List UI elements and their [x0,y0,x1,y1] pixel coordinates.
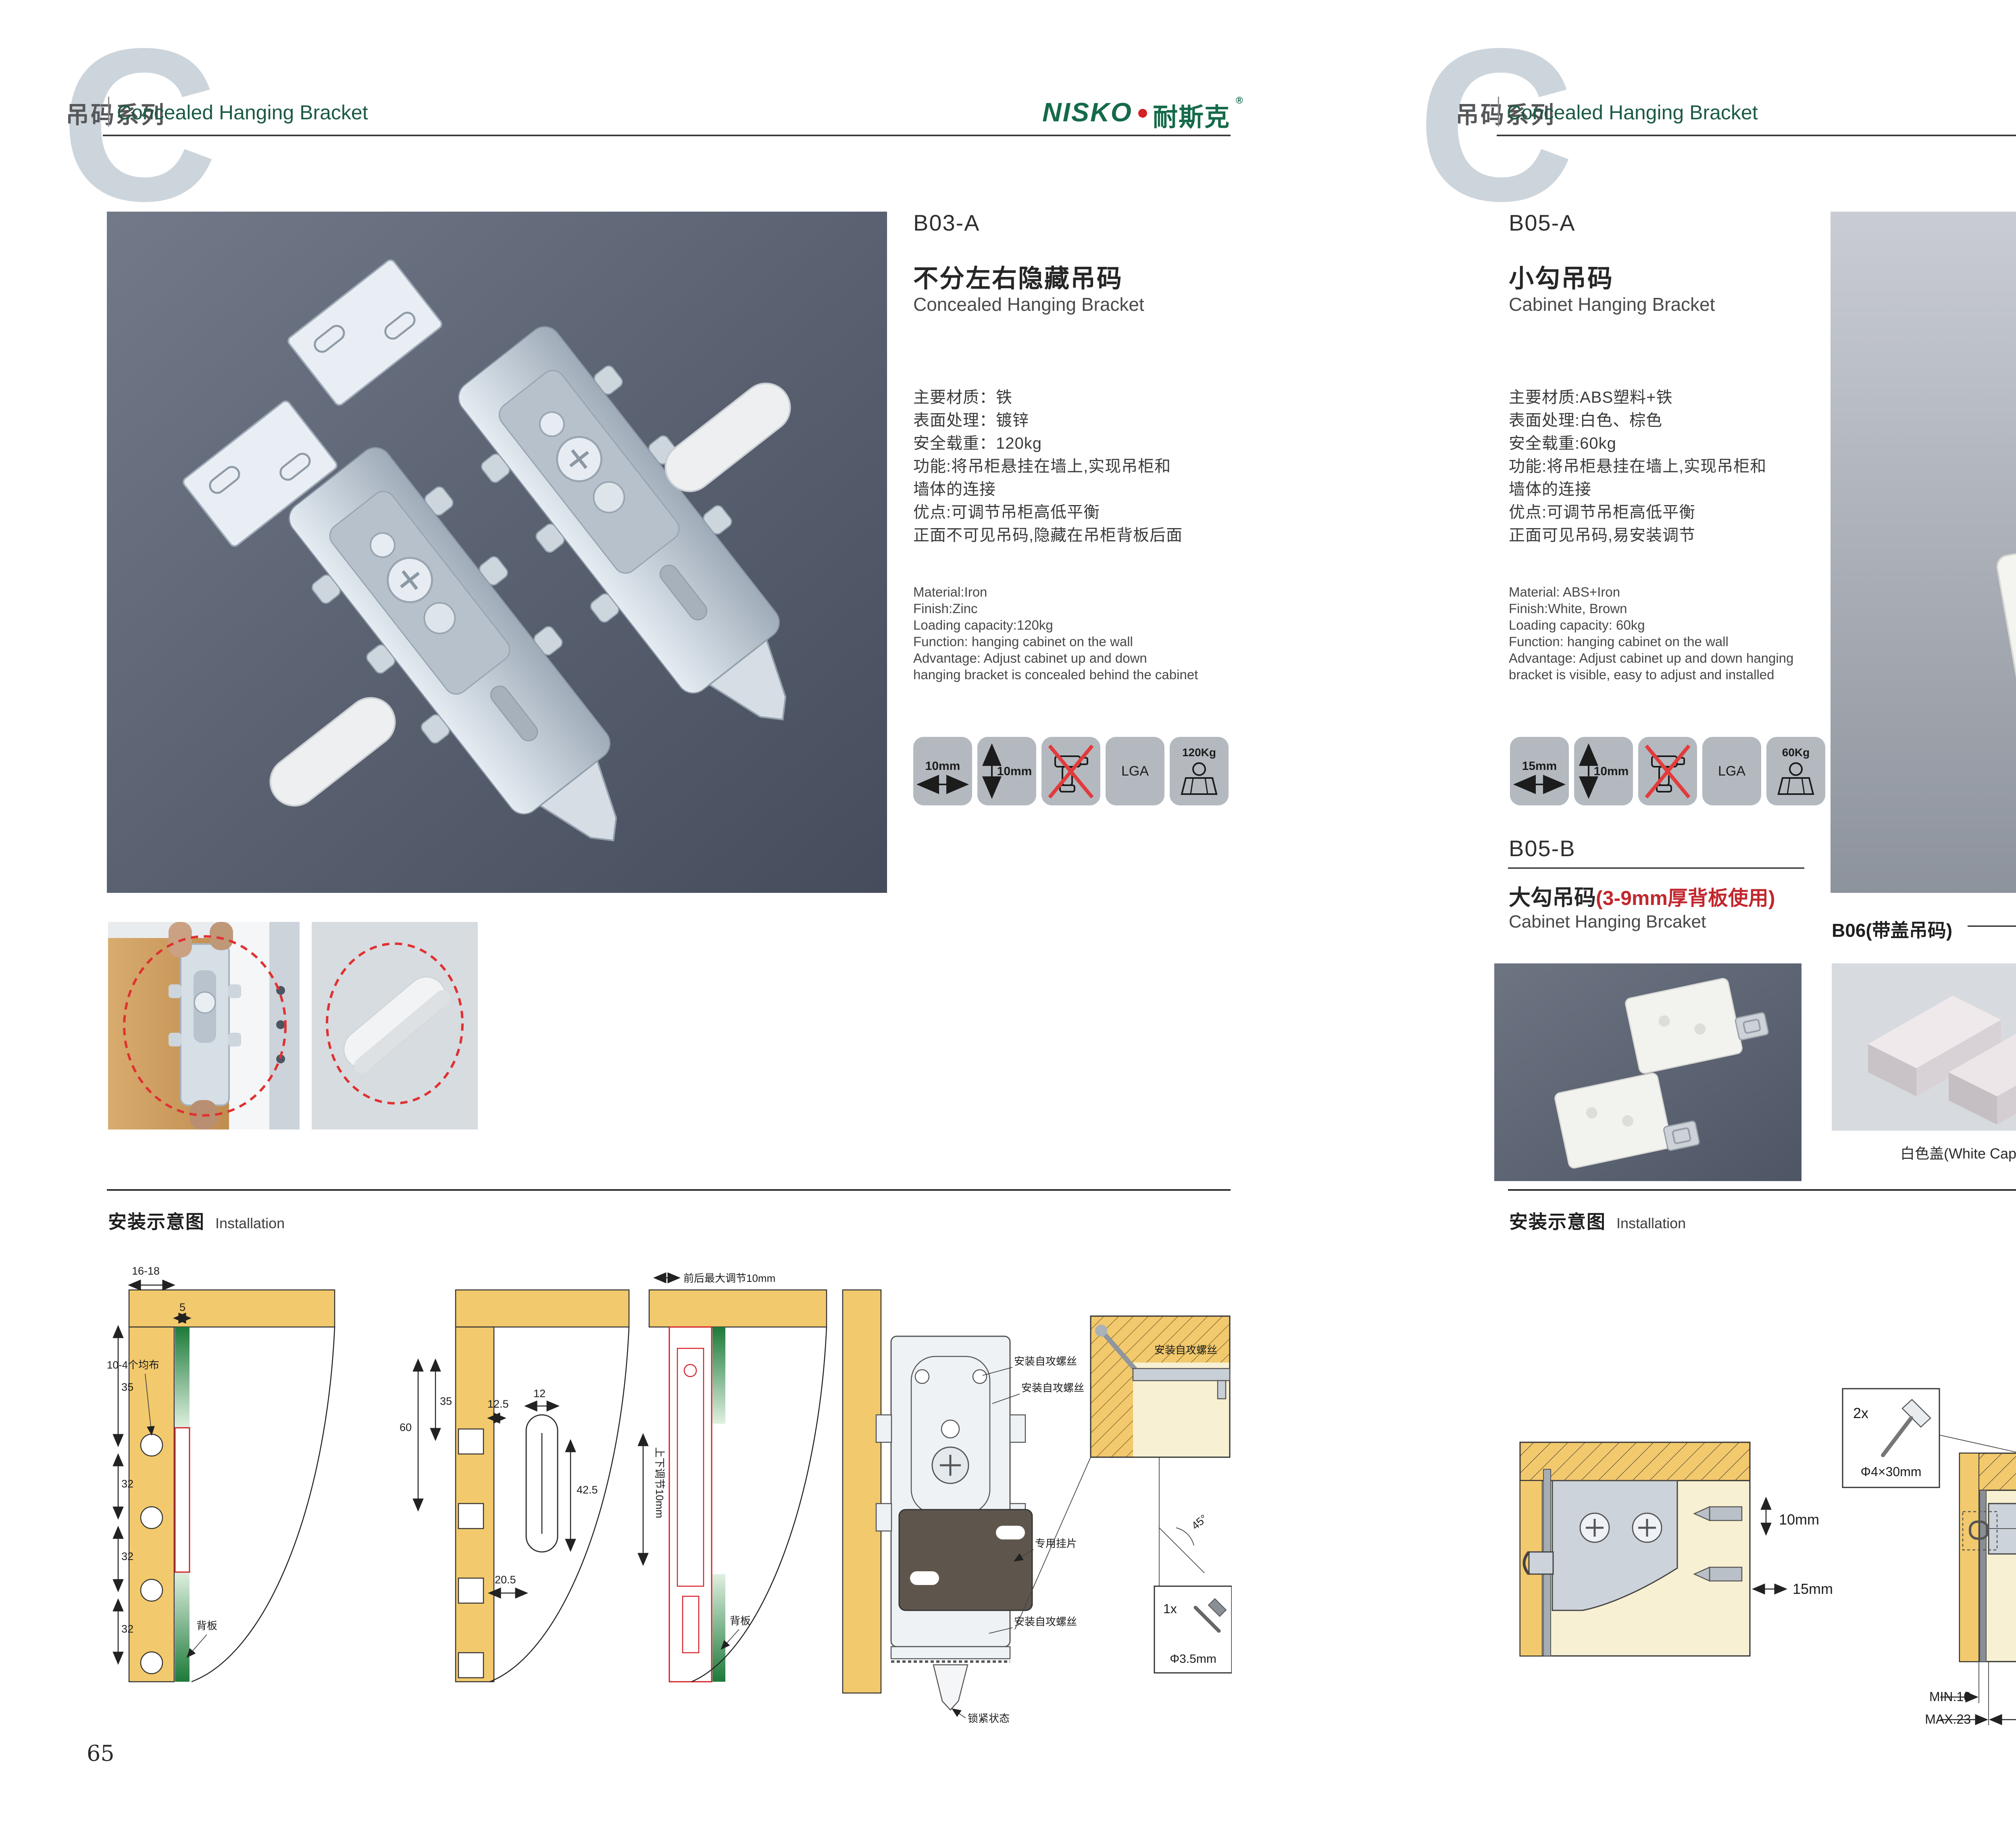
hanging-plate [899,1510,1032,1610]
spec-line: 主要材质：铁 [913,386,1183,409]
b06-white-cap-photo [1832,963,2016,1131]
b03a-icon-row: 10mm 10mm LGA [913,737,1229,805]
svg-text:45°: 45° [1189,1512,1210,1532]
svg-text:LGA: LGA [1121,763,1149,779]
catalog-spread: C 吊码系列 Concealed Hanging Bracket NISKO 耐… [0,0,2016,1847]
b03a-name-en: Concealed Hanging Bracket [913,293,1144,315]
svg-text:背板: 背板 [730,1615,751,1627]
svg-text:10mm: 10mm [997,765,1032,778]
b03a-specs-en: Material:Iron Finish:Zinc Loading capaci… [913,584,1198,683]
installation-header: 安装示意图Installation [1509,1207,1686,1234]
logo-text-cn: 耐斯克 [1153,97,1230,133]
spec-line: Loading capacity: 60kg [1509,617,1793,633]
spec-line: 正面不可见吊码,隐藏在吊柜背板后面 [913,524,1183,547]
svg-text:LGA: LGA [1718,763,1745,779]
header-rule [103,135,1231,136]
diagram-bracket-front: 安装自攻螺丝 安装自攻螺丝 专用挂片 安装自攻螺丝 锁紧状态 [843,1290,1084,1724]
spec-line: Function: hanging cabinet on the wall [1509,633,1793,650]
svg-text:32: 32 [121,1550,133,1562]
spec-line: Loading capacity:120kg [913,617,1198,633]
svg-text:背板: 背板 [196,1620,217,1632]
svg-text:锁紧状态: 锁紧状态 [968,1712,1010,1724]
installation-rule [1508,1189,2016,1191]
installation-title-en: Installation [215,1215,285,1231]
svg-text:32: 32 [121,1623,133,1635]
b03a-install-photo [108,922,300,1129]
spec-line: Advantage: Adjust cabinet up and down ha… [1509,650,1793,666]
svg-text:Φ4×30mm: Φ4×30mm [1861,1464,1922,1479]
no-drill-icon [1041,737,1100,805]
height-adjust-icon: 10mm [977,737,1036,805]
b05b-name-row: 大勾吊码(3-9mm厚背板使用) [1509,880,1775,911]
height-adjust-icon: 10mm [1574,737,1633,805]
b06-white-cap-label: 白色盖(White Cap) [1832,1142,2016,1163]
spec-line: hanging bracket is concealed behind the … [913,666,1198,683]
installation-title-cn: 安装示意图 [1509,1211,1606,1232]
svg-text:专用挂片: 专用挂片 [1035,1537,1077,1550]
lga-cert-icon: LGA [1702,737,1761,805]
svg-text:10mm: 10mm [1779,1511,1819,1528]
installation-header: 安装示意图Installation [108,1207,285,1234]
diagram-hole-pattern: 16-18 5 35 32 32 32 10-4个均布 背板 [107,1265,335,1682]
no-drill-icon [1638,737,1697,805]
b03a-product-photo [107,212,887,893]
spec-line: Function: hanging cabinet on the wall [913,633,1198,650]
spec-line: 主要材质:ABS塑料+铁 [1509,386,1766,409]
svg-text:35: 35 [121,1381,133,1393]
svg-text:前后最大调节10mm: 前后最大调节10mm [683,1272,775,1284]
b05b-code: B05-B [1509,835,1576,861]
svg-text:1x: 1x [1163,1602,1177,1616]
svg-text:5: 5 [179,1301,185,1313]
load-capacity-icon: 60Kg [1766,737,1825,805]
svg-text:10mm: 10mm [925,759,960,773]
diagram-slot-dimensions: 35 60 12.5 12 42.5 20.5 [400,1290,629,1682]
diagram-minmax-section: 18 MIN.10 MAX.23 58 [1925,1453,2016,1726]
width-adjust-icon: 10mm [913,737,972,805]
brand-logo: NISKO 耐斯克 ® [1042,97,1243,133]
spec-line: 安全载重:60kg [1509,432,1766,455]
spec-line: 表面处理:白色、棕色 [1509,409,1766,432]
b03a-installation-diagrams: 16-18 5 35 32 32 32 10-4个均布 背板 [107,1246,1232,1725]
svg-text:20.5: 20.5 [495,1574,516,1586]
svg-text:42.5: 42.5 [577,1484,598,1496]
svg-text:12: 12 [533,1387,546,1400]
spec-line: Advantage: Adjust cabinet up and down [913,650,1198,666]
svg-text:10mm: 10mm [1594,765,1629,778]
logo-text-en: NISKO [1042,97,1133,127]
svg-text:安装自攻螺丝: 安装自攻螺丝 [1014,1616,1077,1628]
installation-rule [107,1189,1231,1191]
svg-text:35: 35 [440,1395,452,1407]
photo-background [107,212,887,893]
b05a-specs-en: Material: ABS+Iron Finish:White, Brown L… [1509,584,1793,683]
svg-text:120Kg: 120Kg [1182,746,1216,759]
spec-line: 功能:将吊柜悬挂在墙上,实现吊柜和 [1509,455,1766,478]
spec-line: Material:Iron [913,584,1198,600]
b05b-name-note: (3-9mm厚背板使用) [1596,887,1775,909]
b05a-name-en: Cabinet Hanging Bracket [1509,293,1715,315]
diagram-adjustment-section: 前后最大调节10mm 上下调节10mm 背板 [643,1272,827,1682]
header-divider [108,97,109,127]
svg-text:10-4个均布: 10-4个均布 [107,1359,159,1371]
spec-line: bracket is visible, easy to adjust and i… [1509,666,1793,683]
diagram-adjust-section: 10mm 15mm 2x Φ4×30mm [1520,1389,2016,1656]
header-divider [1498,97,1499,127]
b05-installation-diagrams: 10mm 15mm 2x Φ4×30mm [1508,1246,2016,1733]
spec-line: Finish:Zinc [913,600,1198,617]
spec-line: 正面可见吊码,易安装调节 [1509,524,1766,547]
b03a-specs-cn: 主要材质：铁 表面处理：镀锌 安全载重：120kg 功能:将吊柜悬挂在墙上,实现… [913,386,1183,547]
series-title-en: Concealed Hanging Bracket [1507,101,1758,124]
logo-registered-mark: ® [1236,95,1243,106]
svg-text:12.5: 12.5 [487,1398,509,1410]
spec-line: 优点:可调节吊柜高低平衡 [913,501,1183,524]
b05b-rule [1508,867,1804,869]
screw-spec-box: 2x Φ4×30mm [1843,1389,1939,1487]
b05a-name-cn: 小勾吊码 [1509,258,1614,294]
b06-rule [1968,926,2016,927]
spec-line: Material: ABS+Iron [1509,584,1793,600]
svg-text:15mm: 15mm [1522,759,1557,773]
spec-line: 功能:将吊柜悬挂在墙上,实现吊柜和 [913,455,1183,478]
spec-line: 安全载重：120kg [913,432,1183,455]
b03a-code: B03-A [913,210,980,236]
spec-line: 墙体的连接 [913,478,1183,501]
svg-text:32: 32 [121,1478,133,1490]
svg-text:安装自攻螺丝: 安装自攻螺丝 [1154,1344,1217,1356]
b05b-name-en: Cabinet Hanging Brcaket [1509,912,1706,932]
svg-text:60: 60 [400,1421,412,1433]
svg-text:2x: 2x [1853,1405,1868,1421]
svg-text:16-18: 16-18 [132,1265,160,1277]
b03a-photo-art [107,212,887,893]
load-capacity-icon: 120Kg [1170,737,1229,805]
header-rule [1497,135,2016,136]
series-title-en: Concealed Hanging Bracket [117,101,368,124]
b03a-cover-photo [312,922,478,1129]
width-adjust-icon: 15mm [1510,737,1569,805]
svg-text:15mm: 15mm [1793,1581,1833,1597]
page-number: 65 [87,1741,115,1766]
b05a-code: B05-A [1509,210,1576,236]
spec-line: Finish:White, Brown [1509,600,1793,617]
b05a-icon-row: 15mm 10mm LGA [1510,737,1825,805]
b06-title: B06(带盖吊码) [1832,916,1952,942]
svg-text:60Kg: 60Kg [1782,746,1810,759]
b05a-product-photo [1831,212,2016,893]
b03a-name-cn: 不分左右隐藏吊码 [913,258,1123,294]
b05b-name-cn: 大勾吊码 [1509,886,1596,910]
logo-dot-icon [1138,109,1147,118]
spec-line: 优点:可调节吊柜高低平衡 [1509,501,1766,524]
installation-title-cn: 安装示意图 [108,1211,205,1232]
spec-line: 表面处理：镀锌 [913,409,1183,432]
svg-text:Φ3.5mm: Φ3.5mm [1170,1652,1216,1666]
svg-text:安装自攻螺丝: 安装自攻螺丝 [1021,1382,1084,1394]
svg-text:安装自攻螺丝: 安装自攻螺丝 [1014,1355,1077,1367]
b05b-product-photo [1494,963,1801,1181]
svg-text:上下调节10mm: 上下调节10mm [654,1447,666,1518]
b05a-specs-cn: 主要材质:ABS塑料+铁 表面处理:白色、棕色 安全载重:60kg 功能:将吊柜… [1509,386,1766,547]
spec-line: 墙体的连接 [1509,478,1766,501]
installation-title-en: Installation [1616,1215,1686,1231]
lga-cert-icon: LGA [1106,737,1164,805]
